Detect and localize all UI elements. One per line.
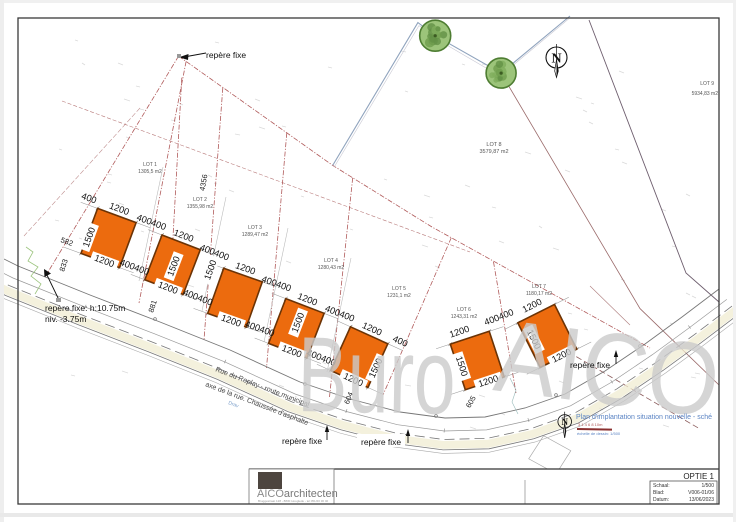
svg-text:1231,1 m2: 1231,1 m2 bbox=[387, 293, 411, 299]
svg-text:repère fixe: repère fixe bbox=[206, 50, 246, 60]
svg-text:1305,5 m2: 1305,5 m2 bbox=[138, 169, 162, 175]
svg-text:Schaal:: Schaal: bbox=[653, 483, 670, 489]
svg-text:Bruggestraat 128 - 8830 Hoogle: Bruggestraat 128 - 8830 Hooglede - tel 0… bbox=[258, 499, 329, 503]
svg-text:LOT 9: LOT 9 bbox=[700, 81, 714, 87]
svg-text:1180,17 m2: 1180,17 m2 bbox=[526, 291, 552, 297]
svg-text:LOT 2: LOT 2 bbox=[193, 197, 207, 203]
svg-text:LOT 6: LOT 6 bbox=[457, 307, 471, 313]
svg-text:niv. -3.75m: niv. -3.75m bbox=[45, 314, 86, 324]
svg-text:Plan d'implantation situation: Plan d'implantation situation nouvelle -… bbox=[576, 414, 712, 421]
svg-text:13/06/2023: 13/06/2023 bbox=[689, 497, 714, 503]
svg-text:LOT 4: LOT 4 bbox=[324, 258, 338, 264]
svg-text:repère fixe: repère fixe bbox=[282, 436, 322, 446]
svg-text:LOT 7: LOT 7 bbox=[532, 284, 546, 290]
svg-text:échelle de dessin: 1/500: échelle de dessin: 1/500 bbox=[577, 431, 621, 436]
svg-text:1/500: 1/500 bbox=[701, 483, 714, 489]
svg-text:1280,43 m2: 1280,43 m2 bbox=[318, 265, 345, 271]
svg-text:Datum:: Datum: bbox=[653, 497, 669, 503]
svg-text:5934,83 m2: 5934,83 m2 bbox=[692, 91, 719, 97]
svg-text:Blad:: Blad: bbox=[653, 490, 664, 496]
svg-text:1355,98 m2: 1355,98 m2 bbox=[187, 204, 214, 210]
svg-text:repère fixe: h:10.75m: repère fixe: h:10.75m bbox=[45, 303, 125, 313]
svg-text:LOT 5: LOT 5 bbox=[392, 286, 406, 292]
svg-text:Buro: Buro bbox=[297, 314, 457, 437]
svg-text:LOT 3: LOT 3 bbox=[248, 225, 262, 231]
svg-text:LOT 8: LOT 8 bbox=[486, 142, 501, 148]
svg-text:LOT 1: LOT 1 bbox=[143, 162, 157, 168]
svg-text:V006-01/06: V006-01/06 bbox=[688, 490, 714, 496]
svg-text:repère fixe: repère fixe bbox=[361, 437, 401, 447]
svg-text:OPTIE 1: OPTIE 1 bbox=[683, 472, 714, 481]
svg-text:repère fixe: repère fixe bbox=[570, 360, 610, 370]
svg-text:3 1 4 6 8 10m: 3 1 4 6 8 10m bbox=[578, 422, 603, 427]
svg-text:3579,87 m2: 3579,87 m2 bbox=[479, 149, 508, 155]
svg-text:1289,47 m2: 1289,47 m2 bbox=[242, 232, 269, 238]
